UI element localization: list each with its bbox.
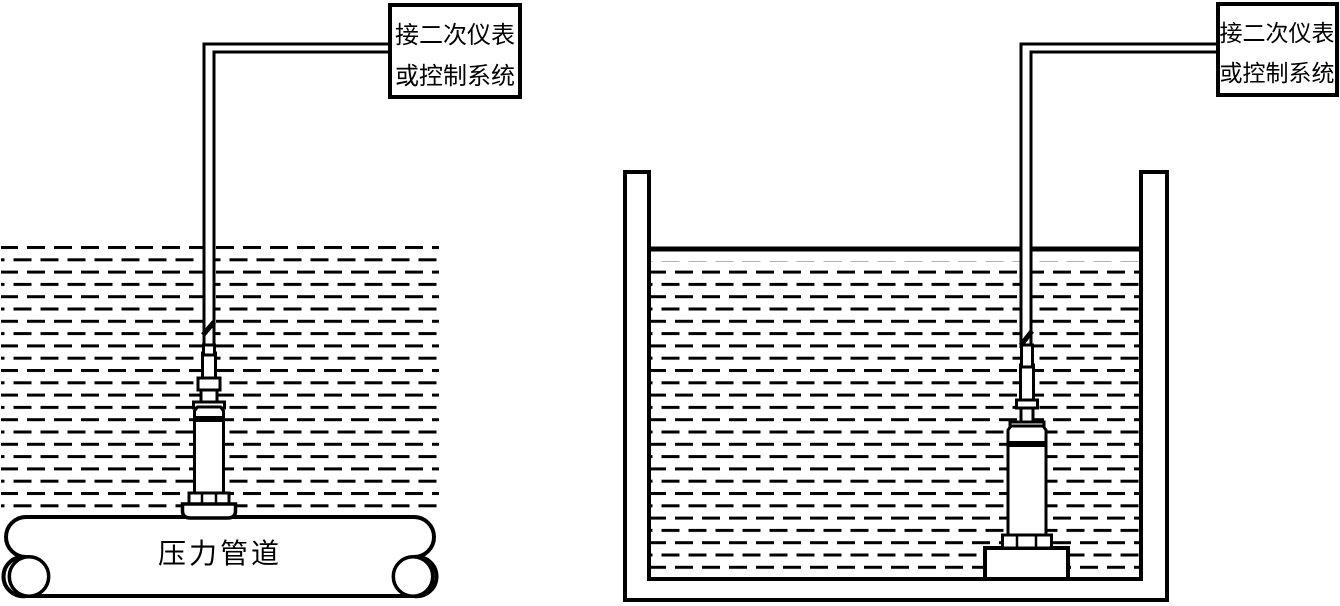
transmitter-stem-upper [1022, 345, 1033, 367]
mounting-boss [183, 504, 236, 518]
diagram-canvas: 压力管道 接二次仪表 或控制系统 [0, 0, 1340, 606]
transmitter-collar [198, 378, 220, 390]
transmitter-stem-upper [204, 345, 215, 355]
transmitter-stem-lower [203, 353, 216, 380]
connection-box-label-line2: 或控制系统 [395, 62, 515, 90]
pipe-label: 压力管道 [158, 537, 282, 570]
pedestal-block [985, 548, 1068, 579]
connection-box-label-line2: 或控制系统 [1220, 61, 1335, 87]
connection-box-label-line1: 接二次仪表 [395, 21, 515, 49]
connection-box: 接二次仪表 或控制系统 [390, 5, 520, 97]
installation-diagram: 压力管道 接二次仪表 或控制系统 [0, 0, 1340, 606]
transmitter-band [195, 416, 224, 422]
transmitter-hex-nut [1003, 535, 1052, 548]
liquid-hatching [649, 261, 1141, 579]
pipe-end-circle-right [393, 557, 432, 596]
pipe-end-circle-left [9, 557, 48, 596]
connection-box: 接二次仪表 或控制系统 [1218, 4, 1337, 95]
connection-box-label-line1: 接二次仪表 [1220, 21, 1335, 47]
transmitter-band [1008, 441, 1046, 447]
transmitter-stem-lower [1021, 365, 1034, 403]
